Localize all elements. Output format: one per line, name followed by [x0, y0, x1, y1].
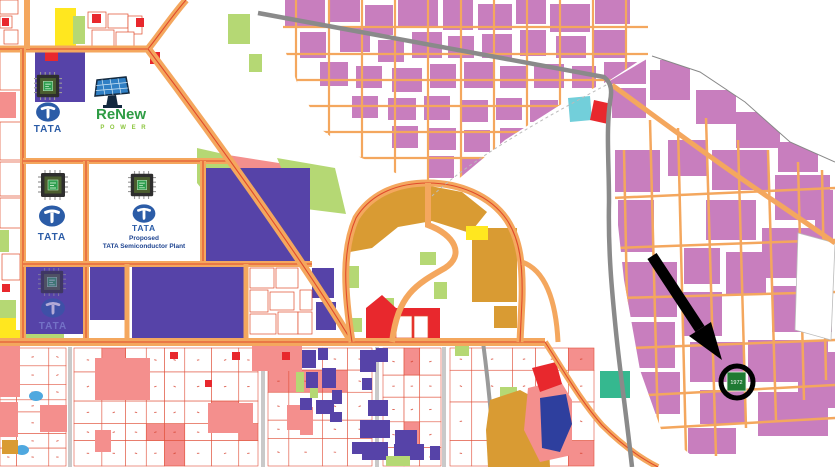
map-zone	[252, 345, 302, 371]
settlement-plot	[612, 88, 646, 118]
map-zone	[2, 284, 10, 292]
settlement-plot	[460, 100, 488, 122]
settlement-plot	[388, 98, 416, 120]
tata-semiconductor-plant-label: TATA Proposed TATA Semiconductor Plant	[103, 171, 186, 250]
settlement-plot	[696, 90, 736, 124]
map-zone	[95, 430, 111, 452]
highlighted-plot: 1972	[727, 372, 746, 391]
map-zone	[568, 96, 592, 122]
plot-number-mark	[304, 452, 306, 453]
map-zone	[276, 268, 298, 288]
settlement-plot	[464, 62, 494, 88]
plot-number-mark	[247, 359, 249, 360]
plant-label-line2: TATA Semiconductor Plant	[103, 243, 186, 250]
renew-logo-subtext: P O W E R	[100, 125, 147, 131]
plot-number-mark	[247, 386, 249, 387]
map-zone	[350, 185, 487, 252]
map-zone	[0, 402, 18, 437]
map-zone	[287, 405, 302, 430]
map-zone	[170, 352, 178, 359]
settlement-plot	[398, 0, 438, 26]
map-zone	[90, 262, 127, 320]
map-zone	[92, 14, 101, 23]
map-zone	[466, 226, 488, 240]
map-zone	[0, 0, 18, 14]
map-zone	[430, 446, 440, 460]
map-zone	[250, 314, 276, 334]
chip-icon	[128, 171, 156, 199]
settlement-plot	[430, 64, 456, 88]
plot-number-mark	[56, 456, 58, 457]
settlement-plot	[736, 112, 780, 148]
plot-number-mark	[411, 386, 413, 387]
map-zone	[136, 18, 144, 27]
tata-logo-text: TATA	[34, 124, 62, 135]
map-zone	[228, 14, 250, 44]
map-zone	[300, 407, 313, 435]
plot-number-mark	[31, 374, 33, 375]
map-zone	[362, 378, 372, 390]
map-canvas: TATA ReNew P O W E R TATA TATA Proposed …	[0, 0, 835, 467]
map-zone	[0, 162, 22, 196]
solar-panel-icon	[95, 77, 129, 108]
map-zone	[395, 430, 417, 444]
road-centerline	[148, 0, 186, 49]
map-zone	[92, 30, 114, 46]
tata-emblem-icon	[36, 102, 60, 121]
map-zone	[40, 405, 67, 432]
plot-number-mark	[392, 409, 394, 410]
settlement-plot	[378, 40, 404, 62]
plot-number-mark	[87, 412, 89, 413]
map-zone	[420, 252, 436, 265]
map-zone	[298, 312, 312, 334]
settlement-plot	[595, 0, 630, 24]
map-zone	[278, 312, 298, 334]
map-zone	[362, 442, 388, 460]
tata-emblem-icon	[41, 298, 65, 317]
map-zone	[322, 368, 336, 388]
map-zone	[2, 18, 9, 26]
map-zone	[0, 300, 16, 318]
map-zone	[205, 380, 212, 387]
open-land	[795, 233, 835, 340]
map-zone	[250, 268, 274, 288]
map-zone	[368, 400, 388, 416]
chip-icon	[34, 72, 62, 100]
map-zone	[494, 306, 517, 328]
map-zone	[2, 440, 18, 454]
settlement-plot	[668, 140, 708, 176]
settlement-plot	[500, 66, 526, 88]
map-zone	[316, 400, 334, 414]
map-zone	[318, 348, 328, 360]
map-zone	[455, 345, 469, 356]
map-zone	[282, 352, 290, 360]
map-zone	[55, 8, 76, 48]
map-zone	[116, 32, 134, 46]
map-zone	[270, 292, 294, 310]
map-zone	[330, 412, 342, 422]
map-zone	[29, 391, 43, 401]
settlement-plot	[625, 322, 675, 368]
settlement-plot	[428, 156, 454, 178]
settlement-plot	[496, 98, 522, 120]
map-zone	[306, 372, 318, 388]
settlement-plot	[443, 0, 473, 30]
map-zone	[434, 282, 447, 299]
plot-number-mark	[580, 453, 582, 454]
plot-number-mark	[113, 453, 115, 454]
map-zone	[414, 316, 428, 338]
map-zone	[250, 290, 268, 312]
settlement-plot	[330, 0, 360, 22]
plot-number-mark	[87, 453, 89, 454]
main-road	[522, 262, 558, 342]
map-zone	[0, 230, 9, 252]
map-zone	[208, 403, 253, 433]
settlement-plot	[520, 30, 546, 56]
map-zone	[0, 198, 22, 228]
settlement-plot	[700, 390, 746, 424]
map-zone	[0, 122, 22, 160]
map-zone	[232, 352, 240, 360]
chip-icon	[38, 268, 66, 296]
settlement-plot	[615, 150, 660, 192]
map-zone	[132, 264, 244, 340]
plot-number-mark	[197, 453, 199, 454]
settlement-plot	[462, 158, 486, 178]
plot-location-map: TATA ReNew P O W E R TATA TATA Proposed …	[0, 0, 835, 467]
settlement-plot	[618, 200, 654, 252]
map-zone	[4, 30, 18, 44]
plot-number-mark	[31, 422, 33, 423]
map-zone	[300, 398, 312, 410]
plant-label-line1: Proposed	[129, 235, 159, 242]
plot-number-mark	[277, 381, 279, 382]
plot-number-label: 1972	[730, 380, 742, 386]
settlement-plot	[320, 62, 348, 86]
settlement-plot	[516, 0, 546, 24]
settlement-plot	[684, 248, 720, 284]
map-zone	[360, 420, 390, 438]
tata-logo-text: TATA	[38, 232, 66, 243]
tata-campus-logo: TATA	[34, 72, 62, 135]
plot-number-mark	[277, 429, 279, 430]
map-zone	[0, 92, 16, 118]
settlement-plot	[530, 100, 558, 122]
settlement-plot	[706, 200, 756, 240]
map-zone	[386, 456, 410, 466]
map-zone	[310, 388, 318, 398]
map-zone	[108, 14, 128, 28]
map-zone	[0, 345, 20, 397]
chip-icon	[38, 170, 68, 200]
map-zone	[249, 54, 262, 72]
map-zone	[302, 350, 316, 368]
plot-number-mark	[392, 386, 394, 387]
map-zone	[2, 254, 20, 280]
settlement-plot	[356, 66, 382, 88]
settlement-plot	[688, 428, 736, 454]
renew-power-logo: ReNew P O W E R	[95, 77, 148, 131]
map-zone	[376, 348, 388, 362]
renew-logo-text: ReNew	[96, 106, 146, 123]
tata-logo-text: TATA	[39, 321, 67, 332]
map-zone	[0, 52, 22, 90]
map-zone	[296, 372, 304, 392]
settlement-plot	[464, 130, 490, 152]
tata-logo-text: TATA	[132, 223, 156, 233]
tata-emblem-icon	[39, 206, 65, 227]
map-zone	[73, 16, 85, 44]
tata-emblem-icon	[133, 204, 156, 222]
settlement-plot	[726, 252, 766, 294]
map-zone	[95, 358, 150, 400]
map-zone	[360, 350, 376, 372]
tata-block2-logo: TATA	[38, 170, 68, 243]
map-zone	[300, 290, 312, 310]
